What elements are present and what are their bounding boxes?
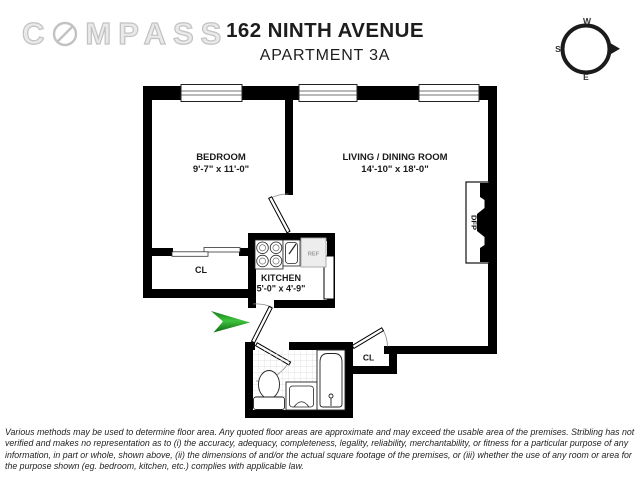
bedroom-door-icon: [269, 194, 290, 233]
kitchen-dimensions: 5'-0" x 4'-9": [257, 284, 306, 294]
compass-rose-bottom-label: E: [583, 72, 589, 82]
fireplace: DFP: [466, 182, 496, 263]
bedroom-dimensions: 9'-7" x 11'-0": [193, 164, 249, 175]
kitchen-label: KITCHEN: [261, 273, 301, 283]
refrigerator-icon: REF: [301, 238, 326, 267]
living-dining-dimensions: 14'-10" x 18'-0": [361, 164, 428, 175]
refrigerator-label: REF: [308, 252, 320, 258]
kitchen-sink-icon: [283, 240, 300, 266]
floor-plan-drawing: DFP: [0, 0, 640, 480]
stove-icon: [255, 240, 283, 269]
bedroom-closet-label: CL: [195, 265, 207, 275]
entry-arrow-icon: [211, 311, 250, 333]
disclaimer-text: Various methods may be used to determine…: [5, 427, 638, 472]
living-dining-label: LIVING / DINING ROOM: [342, 152, 447, 163]
bathroom-sink-icon: [286, 382, 317, 410]
floor-plan-page: C MPASS 162 NINTH AVENUE APARTMENT 3A: [0, 0, 640, 480]
hall-closet-door-icon: [352, 328, 387, 349]
hall-closet-label: CL: [363, 353, 374, 363]
compass-rose-left-label: S: [555, 44, 561, 54]
fireplace-label: DFP: [470, 215, 479, 230]
entry-door-icon: [251, 304, 272, 343]
bedroom-label: BEDROOM: [196, 152, 246, 163]
window-icon: [181, 85, 479, 102]
compass-rose: W S E: [555, 16, 620, 82]
sliding-door-icon: [172, 248, 240, 257]
compass-rose-top-label: W: [583, 16, 592, 26]
bathtub-icon: [317, 350, 345, 410]
